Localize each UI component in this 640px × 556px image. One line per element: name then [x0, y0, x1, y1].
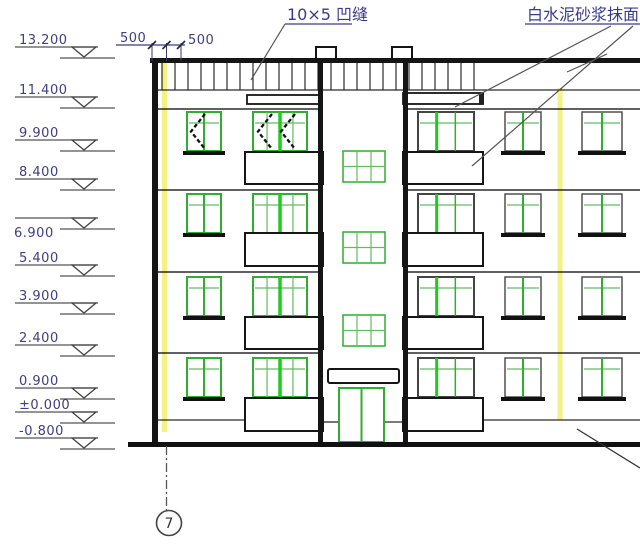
balcony-slab — [245, 398, 323, 431]
ground-line — [128, 442, 640, 447]
window-sill — [501, 397, 545, 401]
level-value: 6.900 — [14, 226, 54, 241]
window-sill — [501, 151, 545, 155]
level-value: 13.200 — [19, 33, 68, 48]
window-sill — [183, 233, 225, 237]
level-value: ±0.000 — [19, 398, 70, 413]
drawing-canvas: 10×5 凹缝 白水泥砂浆抹面 500 500 13.20011.4009.90… — [0, 0, 640, 556]
plaster-label: 白水泥砂浆抹面 — [527, 5, 639, 24]
window-sill — [183, 316, 225, 320]
window-sill — [578, 151, 626, 155]
stair-tower-wall-left — [318, 61, 323, 443]
window-sill — [578, 316, 626, 320]
level-value: 8.400 — [19, 165, 59, 180]
balcony-slab — [403, 317, 483, 349]
balcony-slab — [245, 233, 323, 266]
balcony-slab — [403, 152, 483, 184]
stair-tower-wall-right — [403, 61, 408, 443]
balcony-slab — [245, 152, 323, 184]
balcony-roof-slab — [247, 95, 322, 104]
dimension-text-left: 500 — [120, 31, 146, 46]
level-value: 0.900 — [19, 374, 59, 389]
level-value: -0.800 — [19, 424, 64, 439]
window-sill — [501, 233, 545, 237]
window-frame — [418, 194, 474, 233]
entrance-canopy — [328, 369, 399, 383]
balcony-slab — [245, 317, 323, 349]
window-sill — [578, 233, 626, 237]
elevation-drawing: 10×5 凹缝 白水泥砂浆抹面 500 500 13.20011.4009.90… — [0, 0, 640, 556]
level-value: 5.400 — [19, 251, 59, 266]
window-sill — [183, 397, 225, 401]
window-sill — [501, 316, 545, 320]
balcony-slab — [403, 233, 483, 266]
balcony-slab — [403, 398, 483, 431]
window-frame — [418, 358, 474, 397]
parapet-coping-line — [150, 58, 640, 63]
yellow-axis-highlight-left — [162, 62, 167, 432]
left-end-wall — [152, 58, 158, 445]
dimension-text-right: 500 — [188, 33, 214, 48]
yellow-axis-highlight-right — [558, 88, 563, 420]
level-value: 9.900 — [19, 126, 59, 141]
axis-bubble-number: 7 — [165, 516, 174, 532]
level-value: 11.400 — [19, 83, 68, 98]
window-sill — [183, 151, 225, 155]
level-value: 2.400 — [19, 331, 59, 346]
level-value: 3.900 — [19, 289, 59, 304]
window-frame — [418, 112, 474, 151]
window-sill — [578, 397, 626, 401]
groove-label: 10×5 凹缝 — [287, 5, 368, 24]
window-frame — [418, 277, 474, 316]
